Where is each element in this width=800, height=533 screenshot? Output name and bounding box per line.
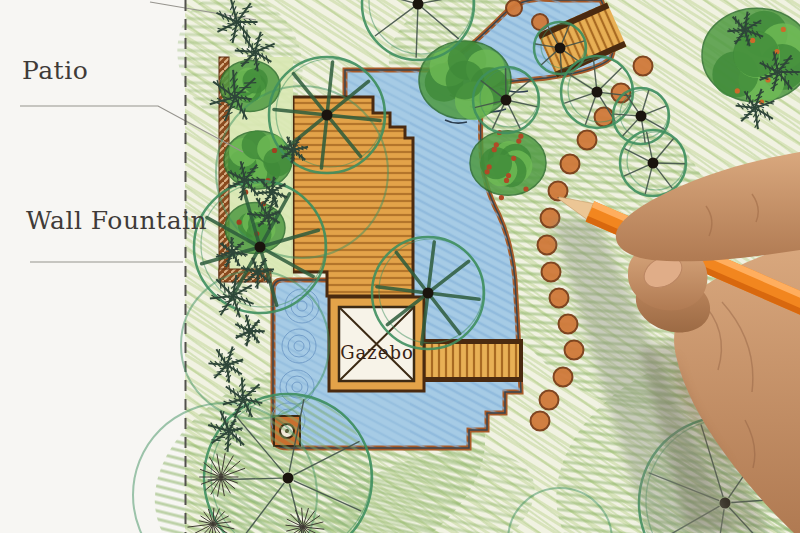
landscape-plan-photo: Gazebo [0,0,800,533]
stepping-stone [538,236,557,255]
stepping-stone [540,391,559,410]
shrub [470,131,546,196]
stepping-stone [550,289,569,308]
stepping-stone [578,131,597,150]
stepping-stone [561,155,580,174]
gazebo-label: Gazebo [340,342,414,363]
stepping-stone [595,108,614,127]
stepping-stone [559,315,578,334]
stepping-stone [554,368,573,387]
wall-fountain-label: Wall Fountain [26,206,207,235]
stepping-stone [506,0,522,16]
stepping-stone [634,57,653,76]
gazebo: Gazebo [329,297,424,391]
plan-drawing: Gazebo [0,0,800,533]
stepping-stone [612,84,631,103]
stepping-stone [531,412,550,431]
patio-label: Patio [22,56,88,85]
boardwalk-pier [413,339,523,382]
stepping-stone [565,341,584,360]
stepping-stone [542,263,561,282]
